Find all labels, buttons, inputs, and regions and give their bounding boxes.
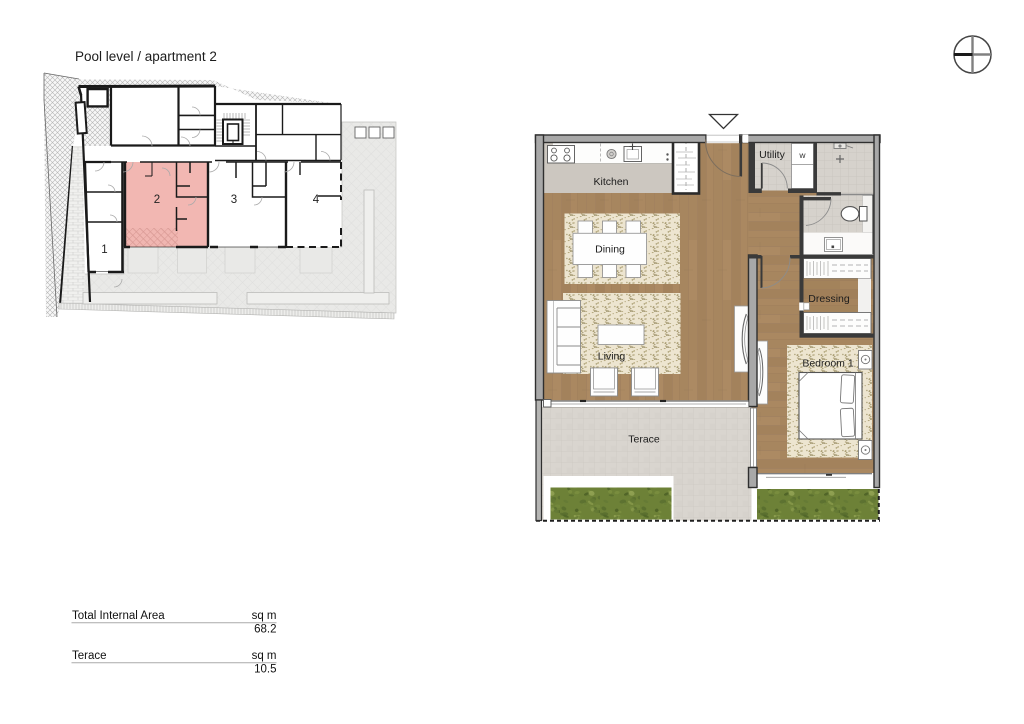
svg-text:Utility: Utility [759,149,785,161]
svg-text:68.2: 68.2 [254,624,276,636]
svg-text:2: 2 [154,194,160,206]
svg-text:3: 3 [231,194,237,206]
svg-text:sq m: sq m [252,650,277,662]
svg-text:10.5: 10.5 [254,664,276,676]
svg-text:Dressing: Dressing [808,293,850,305]
svg-text:Total Internal Area: Total Internal Area [72,610,165,622]
svg-text:1: 1 [101,244,107,256]
svg-text:Dining: Dining [595,244,625,256]
svg-text:Terace: Terace [628,434,660,446]
svg-text:Terace: Terace [72,650,107,662]
svg-text:Pool level / apartment 2: Pool level / apartment 2 [75,49,217,64]
svg-text:w: w [798,150,806,160]
svg-text:sq m: sq m [252,610,277,622]
svg-text:4: 4 [313,194,320,206]
svg-text:Living: Living [598,351,626,363]
svg-text:Bedroom 1: Bedroom 1 [802,358,854,370]
svg-text:Kitchen: Kitchen [593,176,628,188]
